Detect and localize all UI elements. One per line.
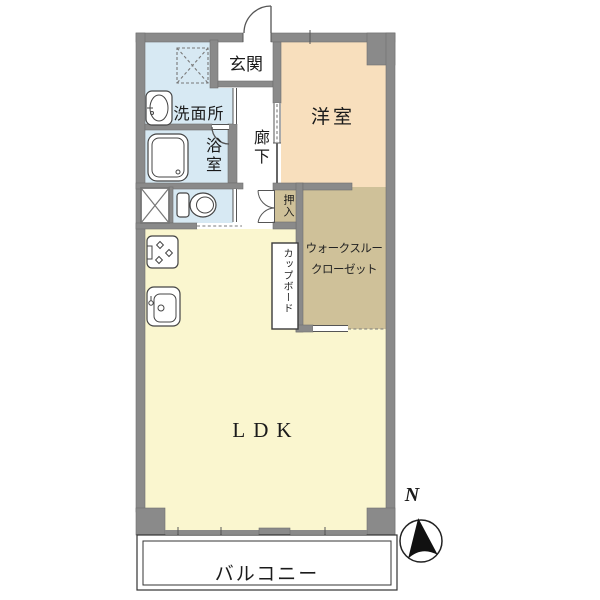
pipe-shaft-icon [141, 188, 169, 223]
toilet-icon [177, 193, 216, 217]
western-room-label: 洋室 [299, 102, 367, 129]
open-boundary [197, 223, 242, 229]
sliding-door-icon [273, 103, 281, 183]
bathroom-label: 浴室 [199, 137, 223, 175]
floor-plan: 玄関 洗面所 浴室 廊下 洋室 押入 ウォークスルー クローゼット カップボード… [0, 0, 600, 600]
gas-stove-icon [147, 236, 178, 268]
entry-door-arc-icon [243, 6, 271, 42]
kitchen-sink-icon [147, 287, 180, 326]
corridor-label: 廊下 [247, 129, 271, 167]
balcony-label: バルコニー [202, 559, 332, 586]
double-closet-door-icon [258, 190, 275, 223]
futon-closet-label: 押入 [280, 194, 296, 218]
ldk-label: LDK [196, 418, 336, 443]
washroom-label: 洗面所 [166, 100, 232, 124]
north-arrow-icon [400, 516, 442, 562]
walk-through-closet-label-line2: クローゼット [303, 261, 385, 277]
plan-canvas [0, 0, 600, 600]
entrance-label: 玄関 [221, 50, 271, 75]
sliding-door-icon [233, 189, 238, 222]
cupboard-label: カップボード [279, 248, 294, 314]
walk-through-closet-label-line1: ウォークスルー [303, 240, 385, 256]
walk-through-closet-area [303, 187, 386, 329]
sliding-door-icon [233, 88, 238, 124]
north-label: N [399, 484, 425, 507]
bathtub-icon [148, 134, 188, 181]
